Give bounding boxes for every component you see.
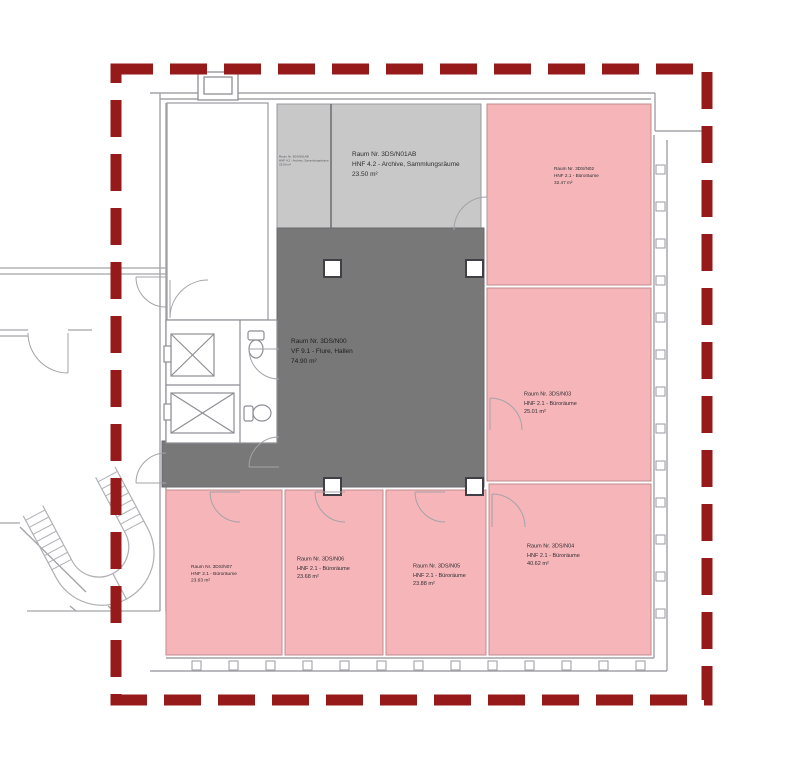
window-mullion — [656, 535, 665, 544]
room-number: Raum Nr. 3DS/N05 — [413, 563, 466, 572]
floor-plan-canvas — [0, 0, 800, 759]
window-mullion — [266, 661, 275, 670]
window-mullion — [636, 661, 645, 670]
elevator-shaft-2 — [164, 393, 234, 433]
room-label-n00: Raum Nr. 3DS/N00 VF 9.1 - Flure, Hallen … — [291, 337, 353, 367]
room-n03 — [487, 288, 651, 481]
room-type: VF 9.1 - Flure, Hallen — [291, 347, 353, 357]
room-label-n02: Raum Nr. 3DS/N02 HNF 2.1 - Büroräume 32.… — [554, 166, 599, 187]
window-mullion — [656, 350, 665, 359]
outside-walls — [0, 268, 166, 611]
column — [466, 260, 483, 277]
room-white-hall — [167, 103, 268, 320]
elevator-shaft-1 — [164, 334, 214, 376]
window-mullion — [656, 313, 665, 322]
window-mullion — [656, 572, 665, 581]
stair-step — [121, 514, 140, 524]
stair-step — [26, 510, 45, 520]
stair-step — [124, 521, 143, 531]
window-mullion — [656, 609, 665, 618]
room-label-n01ab-mini: Raum Nr. 3DS/N01AB HNF 4.2 - Archive, Sa… — [279, 155, 329, 167]
staircase — [23, 467, 172, 624]
window-mullion — [656, 461, 665, 470]
room-type: HNF 2.1 - Büroräume — [297, 565, 350, 574]
room-area: 23.50 m² — [352, 170, 460, 180]
window-mullion — [377, 661, 386, 670]
window-mullion — [656, 387, 665, 396]
wc-toilet-2 — [244, 405, 271, 421]
room-area: 23.63 m² — [191, 578, 237, 585]
room-type: HNF 2.1 - Büroräume — [524, 400, 577, 409]
room-area: 74.90 m² — [291, 357, 353, 367]
room-label-n07: Raum Nr. 3DS/N07 HNF 2.1 - Büroräume 23.… — [191, 564, 237, 584]
room-label-n06: Raum Nr. 3DS/N06 HNF 2.1 - Büroräume 23.… — [297, 556, 350, 582]
window-mullion — [656, 424, 665, 433]
window-mullion — [340, 661, 349, 670]
room-number: Raum Nr. 3DS/N06 — [297, 556, 350, 565]
room-label-n04: Raum Nr. 3DS/N04 HNF 2.1 - Büroräume 40.… — [527, 543, 580, 569]
room-number: Raum Nr. 3DS/N04 — [527, 543, 580, 552]
window-mullion — [451, 661, 460, 670]
room-area: 23.50 m² — [279, 163, 329, 167]
window-mullion — [656, 239, 665, 248]
room-number: Raum Nr. 3DS/N02 — [554, 166, 599, 173]
window-mullion — [525, 661, 534, 670]
room-number: Raum Nr. 3DS/N03 — [524, 391, 577, 400]
window-mullion — [488, 661, 497, 670]
stair-step — [44, 545, 63, 555]
window-mullion — [656, 165, 665, 174]
room-area: 40.62 m² — [527, 560, 580, 569]
stair-step — [29, 517, 48, 527]
window-mullion — [414, 661, 423, 670]
window-mullion — [192, 661, 201, 670]
window-mullion — [562, 661, 571, 670]
room-area: 25.01 m² — [524, 408, 577, 417]
wc-toilet-1 — [248, 331, 264, 358]
window-mullion — [599, 661, 608, 670]
column — [466, 478, 483, 495]
room-n02 — [487, 104, 651, 285]
room-number: Raum Nr. 3DS/N00 — [291, 337, 353, 347]
room-label-n03: Raum Nr. 3DS/N03 HNF 2.1 - Büroräume 25.… — [524, 391, 577, 417]
room-type: HNF 4.2 - Archive, Sammlungsräume — [352, 160, 460, 170]
room-number: Raum Nr. 3DS/N01AB — [352, 150, 460, 160]
stair-step — [33, 524, 52, 534]
room-area: 23.68 m² — [297, 573, 350, 582]
room-type: HNF 2.1 - Büroräume — [527, 552, 580, 561]
window-mullion — [303, 661, 312, 670]
column — [324, 260, 341, 277]
stair-step — [41, 538, 60, 548]
elevator-core — [164, 320, 277, 443]
floor-plan-page: Raum Nr. 3DS/N01AB HNF 4.2 - Archive, Sa… — [0, 0, 800, 759]
room-label-n01ab: Raum Nr. 3DS/N01AB HNF 4.2 - Archive, Sa… — [352, 150, 460, 180]
window-mullion — [656, 202, 665, 211]
room-area: 23.88 m² — [413, 580, 466, 589]
window-mullion — [656, 276, 665, 285]
stair-step — [37, 531, 56, 541]
window-mullion — [656, 498, 665, 507]
window-mullion — [229, 661, 238, 670]
room-type: HNF 2.1 - Büroräume — [554, 173, 599, 180]
room-type: HNF 2.1 - Büroräume — [413, 572, 466, 581]
room-type: HNF 2.1 - Büroräume — [191, 571, 237, 578]
room-label-n05: Raum Nr. 3DS/N05 HNF 2.1 - Büroräume 23.… — [413, 563, 466, 589]
room-area: 32.47 m² — [554, 180, 599, 187]
room-number: Raum Nr. 3DS/N07 — [191, 564, 237, 571]
room-n04 — [489, 484, 651, 655]
